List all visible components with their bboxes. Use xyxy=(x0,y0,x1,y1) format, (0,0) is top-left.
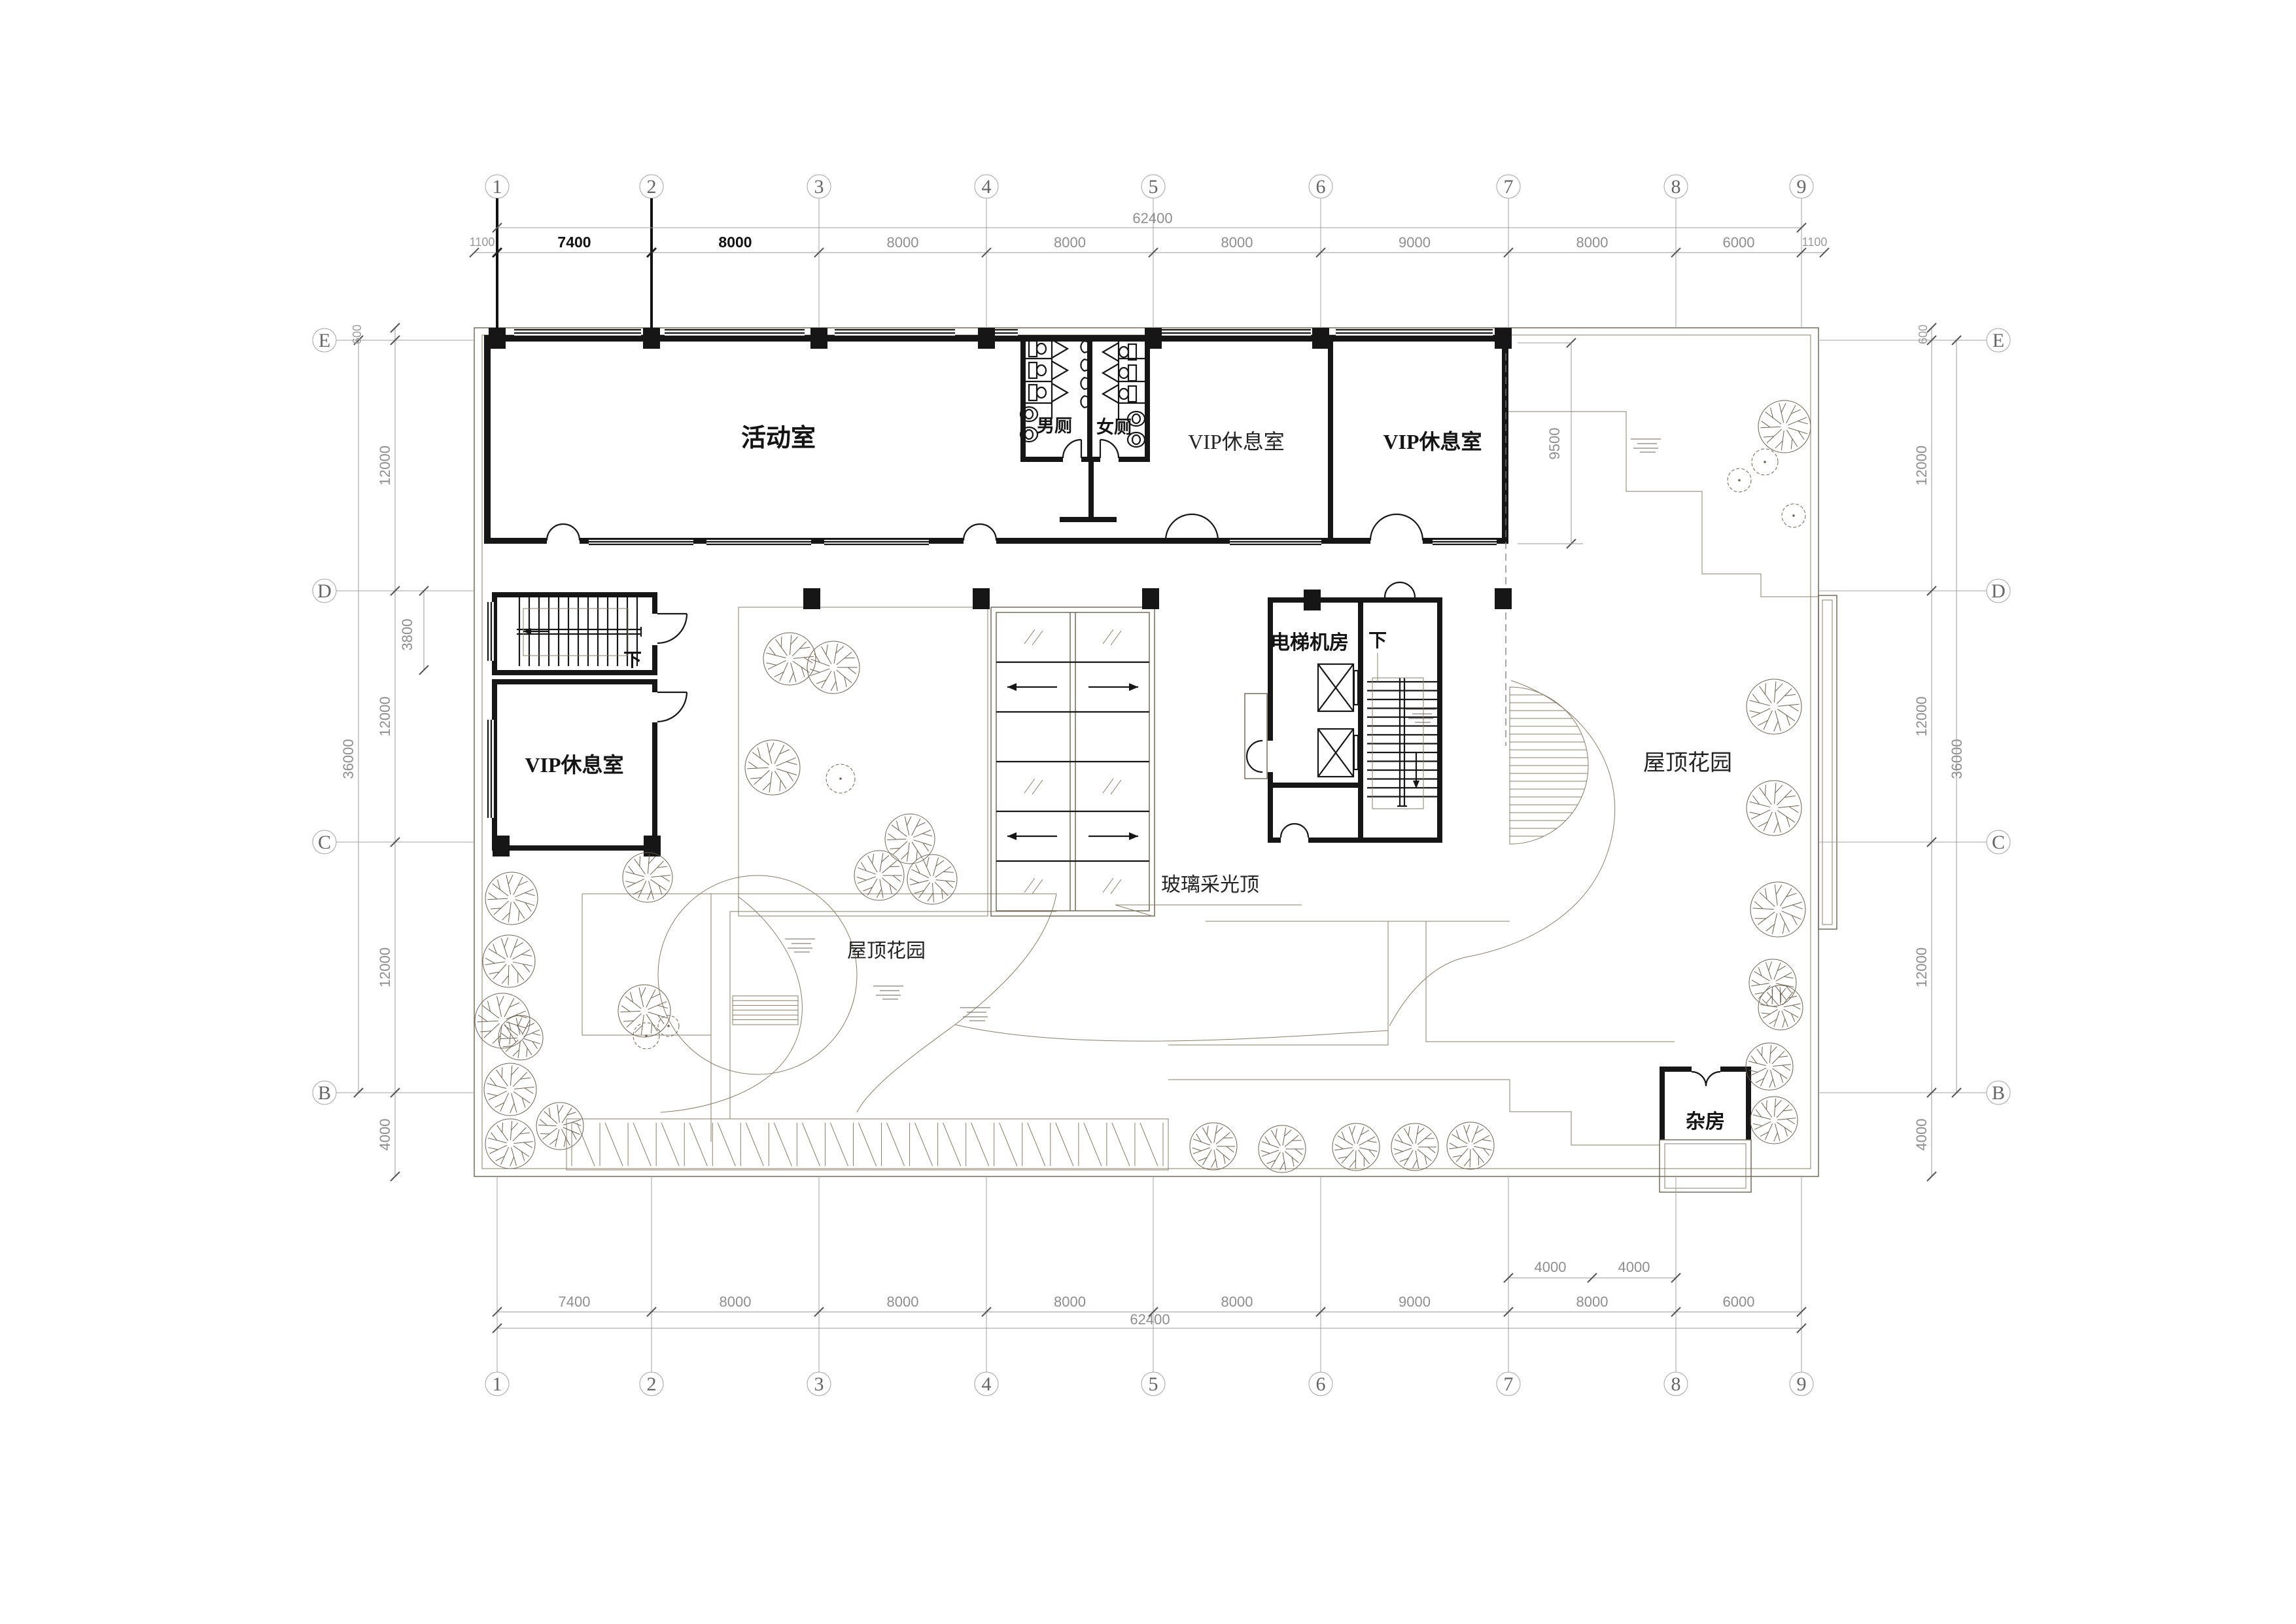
svg-text:4000: 4000 xyxy=(377,1119,393,1151)
svg-text:8: 8 xyxy=(1671,176,1681,198)
right-ledge xyxy=(1818,595,1837,929)
svg-text:1100: 1100 xyxy=(470,236,495,249)
svg-text:4: 4 xyxy=(982,176,992,198)
svg-text:5: 5 xyxy=(1149,1373,1158,1395)
lift-shaft-2 xyxy=(1318,729,1358,777)
activity-room-label: 活动室 xyxy=(741,424,816,452)
svg-text:9000: 9000 xyxy=(1399,1294,1431,1310)
svg-text:8000: 8000 xyxy=(1054,234,1086,251)
left-stair-treads xyxy=(517,597,641,666)
svg-text:62400: 62400 xyxy=(1130,1311,1170,1328)
svg-text:8000: 8000 xyxy=(1576,1294,1609,1310)
svg-text:C: C xyxy=(1992,832,2005,853)
svg-text:8000: 8000 xyxy=(1054,1294,1086,1310)
svg-text:2: 2 xyxy=(647,176,657,198)
misc-room: 杂房 xyxy=(1660,1067,1751,1192)
svg-text:12000: 12000 xyxy=(377,446,393,485)
svg-text:12000: 12000 xyxy=(377,696,393,736)
vip1-label: VIP休息室 xyxy=(1188,430,1285,453)
roof-garden-right-label: 屋顶花园 xyxy=(1643,750,1732,775)
svg-text:8000: 8000 xyxy=(718,234,752,251)
elevator-block: 电梯机房 下 xyxy=(1245,582,1442,843)
pergola-louvers xyxy=(566,1119,1168,1170)
svg-text:8000: 8000 xyxy=(1221,1294,1253,1310)
glass-skylight: 玻璃采光顶 xyxy=(991,607,1302,916)
vip1-door xyxy=(1166,514,1218,540)
landscape-trees xyxy=(475,400,1811,1173)
machine-room-door xyxy=(1247,741,1262,772)
svg-text:12000: 12000 xyxy=(1913,696,1930,736)
svg-text:9500: 9500 xyxy=(1546,428,1563,460)
svg-text:B: B xyxy=(318,1082,331,1104)
svg-text:6: 6 xyxy=(1316,176,1326,198)
left-vip-door xyxy=(657,692,687,722)
activity-door xyxy=(547,524,580,540)
elevator-room-label: 电梯机房 xyxy=(1270,632,1349,654)
left-vip-room: VIP休息室 xyxy=(492,679,687,851)
mens-toilet-label: 男厕 xyxy=(1037,416,1072,436)
svg-text:12000: 12000 xyxy=(1913,947,1930,987)
elev-stair-door xyxy=(1385,582,1415,597)
top-room-band: 活动室 男厕 女厕 VIP休息室 VIP休息室 xyxy=(484,335,1508,544)
svg-text:1: 1 xyxy=(493,176,502,198)
svg-text:8000: 8000 xyxy=(1221,234,1253,251)
svg-text:36000: 36000 xyxy=(1949,739,1965,779)
svg-text:1: 1 xyxy=(493,1373,502,1395)
svg-text:12000: 12000 xyxy=(377,947,393,987)
svg-text:36000: 36000 xyxy=(340,739,357,779)
svg-text:12000: 12000 xyxy=(1913,446,1930,485)
svg-text:3: 3 xyxy=(814,176,824,198)
svg-text:4000: 4000 xyxy=(1913,1119,1930,1151)
left-stair-block: 下 xyxy=(492,592,687,675)
amphitheater xyxy=(1510,687,1588,844)
svg-text:8: 8 xyxy=(1671,1373,1681,1395)
skylight-panels xyxy=(996,629,1149,894)
skylight-label: 玻璃采光顶 xyxy=(1161,874,1259,896)
svg-text:4000: 4000 xyxy=(1618,1259,1650,1275)
svg-text:7: 7 xyxy=(1504,1373,1514,1395)
left-stair-down-label: 下 xyxy=(623,650,642,671)
svg-text:6000: 6000 xyxy=(1723,1294,1755,1310)
svg-text:62400: 62400 xyxy=(1132,210,1172,226)
svg-text:9000: 9000 xyxy=(1399,234,1431,251)
svg-text:4: 4 xyxy=(982,1373,992,1395)
svg-text:C: C xyxy=(318,832,331,853)
svg-text:8000: 8000 xyxy=(720,1294,752,1310)
svg-text:8000: 8000 xyxy=(1576,234,1609,251)
vip2-label: VIP休息室 xyxy=(1383,430,1482,453)
svg-text:E: E xyxy=(319,330,330,351)
svg-text:600: 600 xyxy=(351,325,364,344)
svg-text:7: 7 xyxy=(1504,176,1514,198)
svg-text:3: 3 xyxy=(814,1373,824,1395)
elevator-stair-treads xyxy=(1367,653,1437,809)
left-vip-label: VIP休息室 xyxy=(525,753,623,777)
svg-text:6: 6 xyxy=(1316,1373,1326,1395)
svg-text:8000: 8000 xyxy=(887,1294,919,1310)
roof-garden-paths xyxy=(582,412,1818,1145)
svg-text:7400: 7400 xyxy=(557,234,591,251)
svg-text:600: 600 xyxy=(1917,325,1930,344)
vip2-door xyxy=(1370,514,1423,540)
svg-text:4000: 4000 xyxy=(1535,1259,1567,1275)
svg-text:E: E xyxy=(1992,330,2004,351)
svg-text:6000: 6000 xyxy=(1723,234,1755,251)
svg-text:9: 9 xyxy=(1797,176,1807,198)
stair-door xyxy=(657,614,687,643)
svg-text:5: 5 xyxy=(1149,176,1158,198)
svg-text:2: 2 xyxy=(647,1373,657,1395)
svg-text:8000: 8000 xyxy=(887,234,919,251)
closet-door xyxy=(1281,824,1308,838)
roof-garden-left-label: 屋顶花园 xyxy=(847,940,926,962)
misc-room-door xyxy=(1692,1072,1720,1086)
lift-shaft-1 xyxy=(1318,664,1358,711)
svg-text:B: B xyxy=(1992,1082,2005,1104)
svg-text:D: D xyxy=(317,580,332,602)
womens-toilet-label: 女厕 xyxy=(1096,417,1132,437)
svg-text:9: 9 xyxy=(1797,1373,1807,1395)
misc-room-label: 杂房 xyxy=(1686,1111,1725,1133)
elev-stair-down-label: 下 xyxy=(1368,631,1387,651)
svg-text:7400: 7400 xyxy=(559,1294,591,1310)
garden-round-lawn xyxy=(658,875,857,1074)
activity-door-2 xyxy=(964,524,996,540)
garden-steps xyxy=(733,996,798,1025)
svg-text:1100: 1100 xyxy=(1802,236,1828,249)
svg-text:3800: 3800 xyxy=(399,619,415,651)
floor-plan-canvas: 玻璃采光顶 活动室 男厕 女厕 xyxy=(0,0,2296,1624)
building-slab xyxy=(474,328,1837,1176)
grid-and-dimensions: 1234567896240074008000800080008000900080… xyxy=(313,175,2010,1396)
svg-text:D: D xyxy=(1991,580,2006,602)
window-strips xyxy=(487,329,1497,818)
